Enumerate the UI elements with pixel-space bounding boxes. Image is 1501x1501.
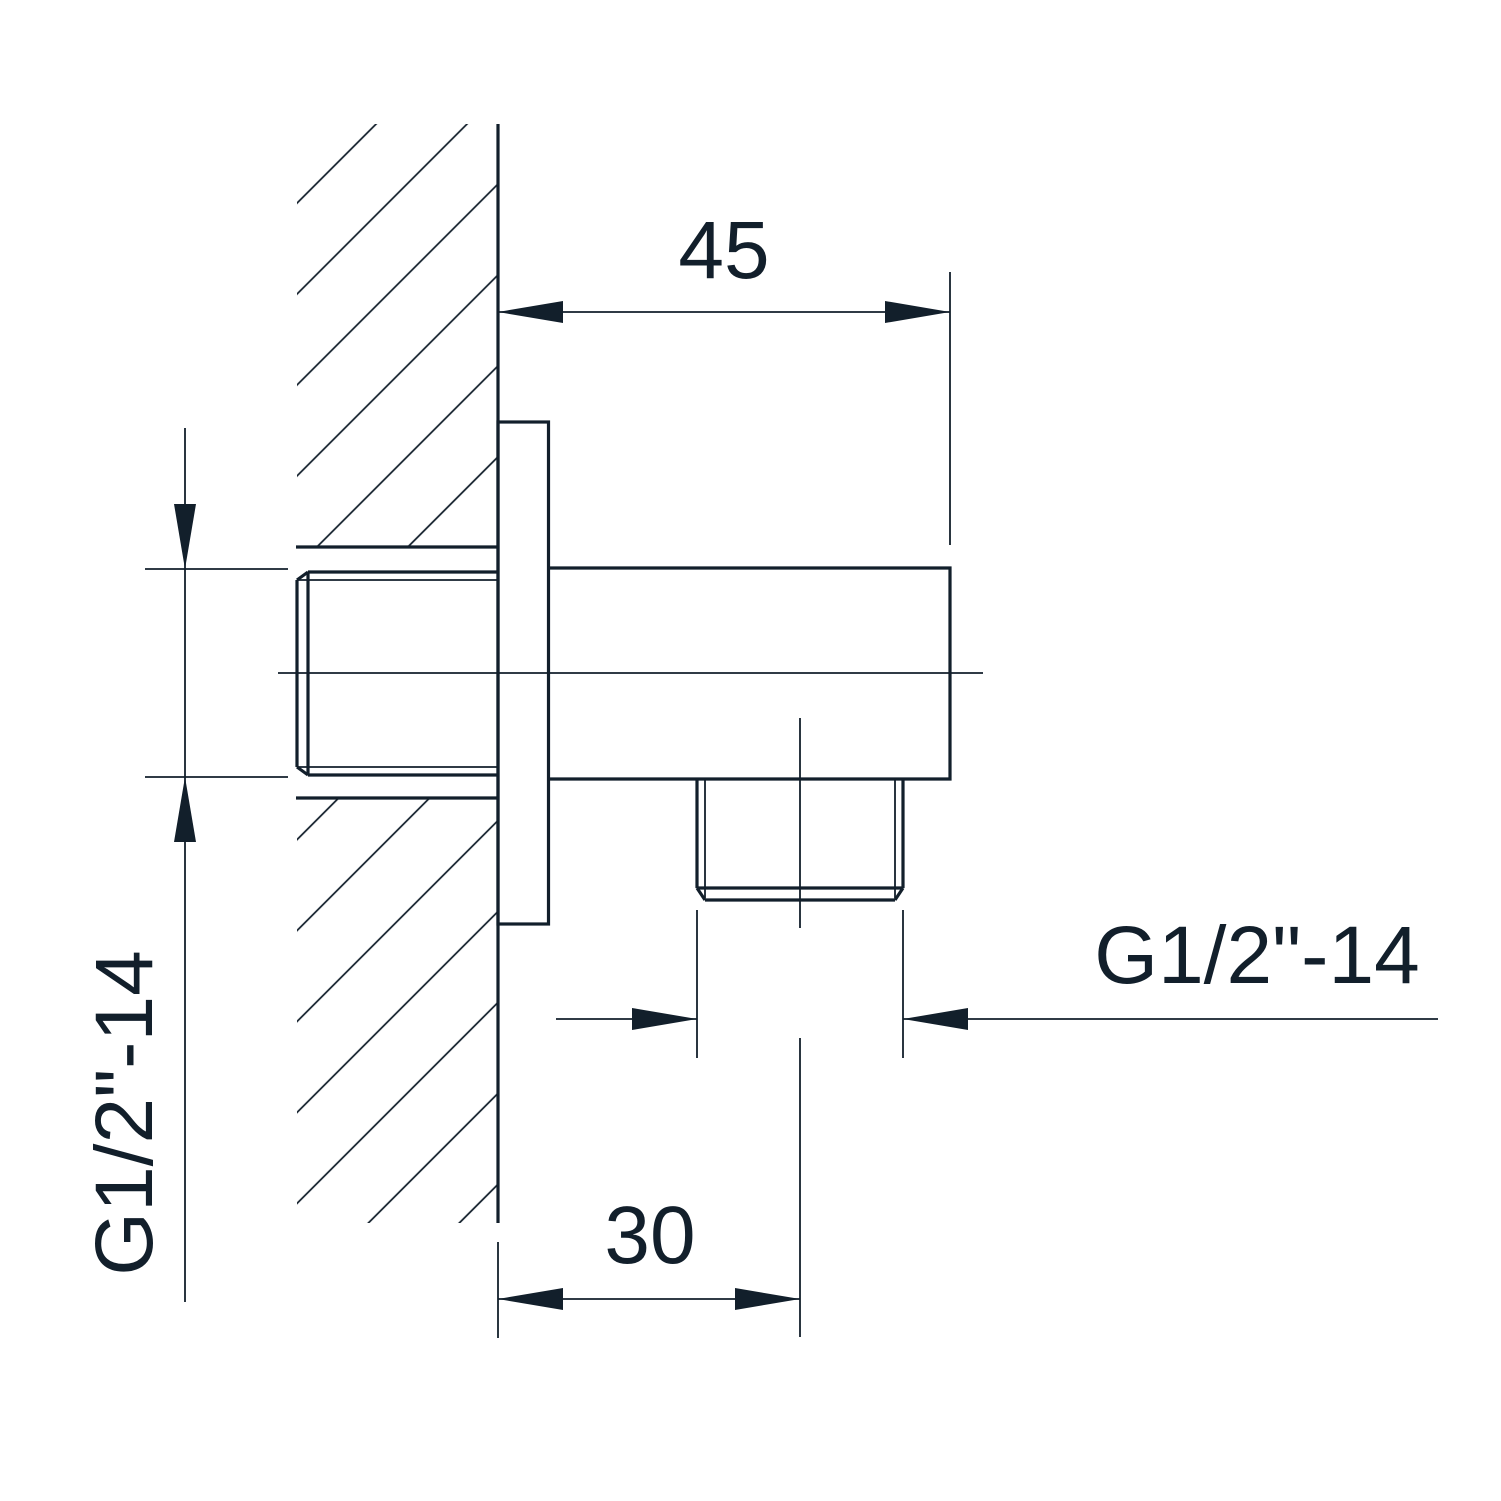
- dimension-inlet-thread: G1/2"-14: [79, 428, 288, 1302]
- arrowhead-right: [735, 1288, 800, 1310]
- dimension-outlet-thread: G1/2"-14: [556, 910, 1438, 1058]
- inlet-chamfer-top: [297, 572, 308, 580]
- dimension-top-width: 45: [498, 205, 950, 545]
- wall-hatching-upper: [297, 124, 498, 547]
- arrowhead-up: [174, 777, 196, 842]
- outlet-chamfer-left: [697, 888, 705, 900]
- dimension-value-45: 45: [678, 205, 769, 296]
- inlet-thread-label: G1/2"-14: [79, 950, 170, 1275]
- dimension-value-30: 30: [604, 1190, 695, 1281]
- arrowhead-right: [885, 301, 950, 323]
- arrowhead-down: [174, 504, 196, 569]
- inlet-chamfer-bottom: [297, 767, 308, 775]
- technical-drawing-shower-outlet-elbow: 45 G1/2"-14 G1/2"-14 30: [0, 0, 1501, 1501]
- arrowhead-inward-left: [903, 1008, 968, 1030]
- dimension-outlet-offset: 30: [498, 1190, 800, 1338]
- drawing-canvas: 45 G1/2"-14 G1/2"-14 30: [0, 0, 1501, 1501]
- arrowhead-left: [498, 1288, 563, 1310]
- outlet-chamfer-right: [895, 888, 903, 900]
- wall-hatching-lower: [297, 798, 498, 1223]
- arrowhead-left: [498, 301, 563, 323]
- outlet-thread-label: G1/2"-14: [1094, 910, 1419, 1001]
- arrowhead-inward-right: [632, 1008, 697, 1030]
